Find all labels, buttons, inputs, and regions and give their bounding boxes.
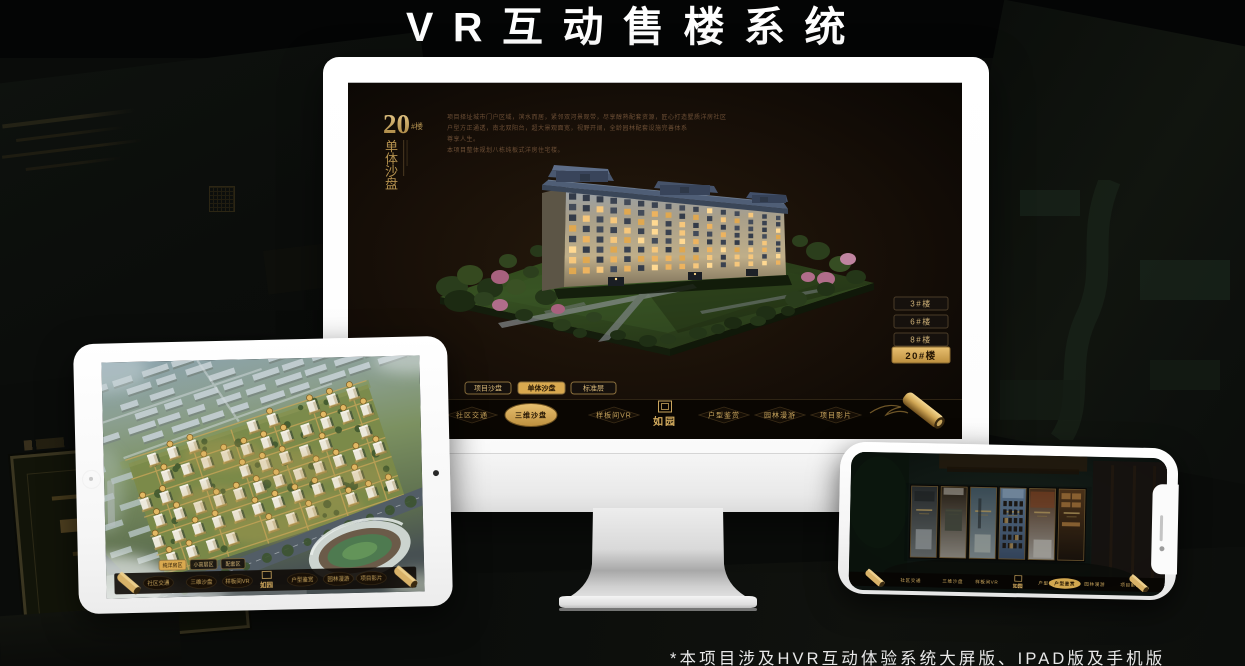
svg-text:盘: 盘 <box>385 177 398 192</box>
svg-text:项目择址城市门户区域，滨水而居，紧邻双河景观带，尽享醇熟配套: 项目择址城市门户区域，滨水而居，紧邻双河景观带，尽享醇熟配套资源，匠心打造墅质洋… <box>447 113 727 121</box>
svg-text:样板间VR: 样板间VR <box>596 411 632 420</box>
svg-text:单体沙盘: 单体沙盘 <box>528 384 556 393</box>
svg-text:20#楼: 20#楼 <box>905 350 936 362</box>
svg-text:本项目整体规划八栋纯板式洋房住宅楼。: 本项目整体规划八栋纯板式洋房住宅楼。 <box>447 146 564 154</box>
svg-text:户型方正通透，南北双阳台，超大景观面宽，视野开阔，全龄园林配: 户型方正通透，南北双阳台，超大景观面宽，视野开阔，全龄园林配套设施完善体系 <box>447 124 688 132</box>
svg-text:如园: 如园 <box>260 580 274 589</box>
svg-text:三维沙盘: 三维沙盘 <box>515 411 547 420</box>
svg-text:标准层: 标准层 <box>583 384 604 393</box>
svg-text:配套区: 配套区 <box>225 561 240 568</box>
svg-text:20: 20 <box>383 109 410 139</box>
svg-text:小高层区: 小高层区 <box>193 561 213 568</box>
svg-text:如园: 如园 <box>653 415 677 428</box>
svg-text:6#楼: 6#楼 <box>910 317 931 327</box>
svg-text:3#楼: 3#楼 <box>910 299 931 309</box>
svg-text:尊享人生。: 尊享人生。 <box>447 135 480 143</box>
svg-text:8#楼: 8#楼 <box>910 335 931 345</box>
svg-text:项目沙盘: 项目沙盘 <box>474 384 502 393</box>
svg-text:社区交通: 社区交通 <box>456 411 488 420</box>
svg-text:纯洋房区: 纯洋房区 <box>162 562 182 569</box>
svg-text:园林漫游: 园林漫游 <box>764 411 796 420</box>
svg-text:#楼: #楼 <box>411 121 423 131</box>
svg-text:项目影片: 项目影片 <box>820 411 852 420</box>
svg-text:户型鉴赏: 户型鉴赏 <box>708 411 740 420</box>
